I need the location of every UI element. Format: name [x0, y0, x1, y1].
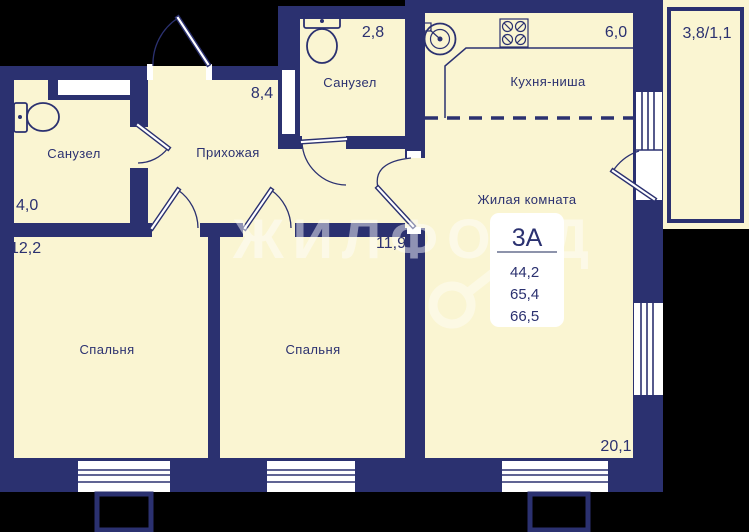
room-label-living: Жилая комната [477, 192, 576, 207]
floor-plan: ЖИЛФОНД 3А 44,2 65,4 66,5 Санузел 4,0 Са… [0, 0, 749, 532]
room-label-bathroom-top: Санузел [323, 75, 376, 90]
room-area-living: 20,1 [600, 438, 631, 455]
unit-area-full: 66,5 [510, 308, 539, 325]
room-area-hallway: 8,4 [251, 85, 273, 102]
room-label-bedroom-1: Спальня [79, 342, 134, 357]
room-area-bathroom-top: 2,8 [362, 24, 384, 41]
room-area-kitchen: 6,0 [605, 24, 627, 41]
window-bedroom-1 [78, 461, 170, 492]
room-area-balcony: 3,8/1,1 [683, 25, 732, 42]
room-area-bathroom-left: 4,0 [16, 197, 38, 214]
window-bedroom-2 [267, 461, 355, 492]
unit-stat-box: 3А 44,2 65,4 66,5 [490, 213, 564, 327]
room-label-hallway: Прихожая [196, 145, 259, 160]
unit-area-living: 44,2 [510, 264, 539, 281]
room-label-kitchen: Кухня-ниша [510, 74, 586, 89]
unit-number: 3А [512, 224, 543, 252]
room-label-bathroom-left: Санузел [47, 146, 100, 161]
room-label-bedroom-2: Спальня [285, 342, 340, 357]
room-area-bedroom-2: 11,9 [376, 235, 406, 252]
unit-area-total: 65,4 [510, 286, 539, 303]
window-living-room-side [634, 303, 663, 395]
room-area-bedroom-1: 12,2 [10, 240, 41, 257]
window-living-room [502, 461, 608, 492]
